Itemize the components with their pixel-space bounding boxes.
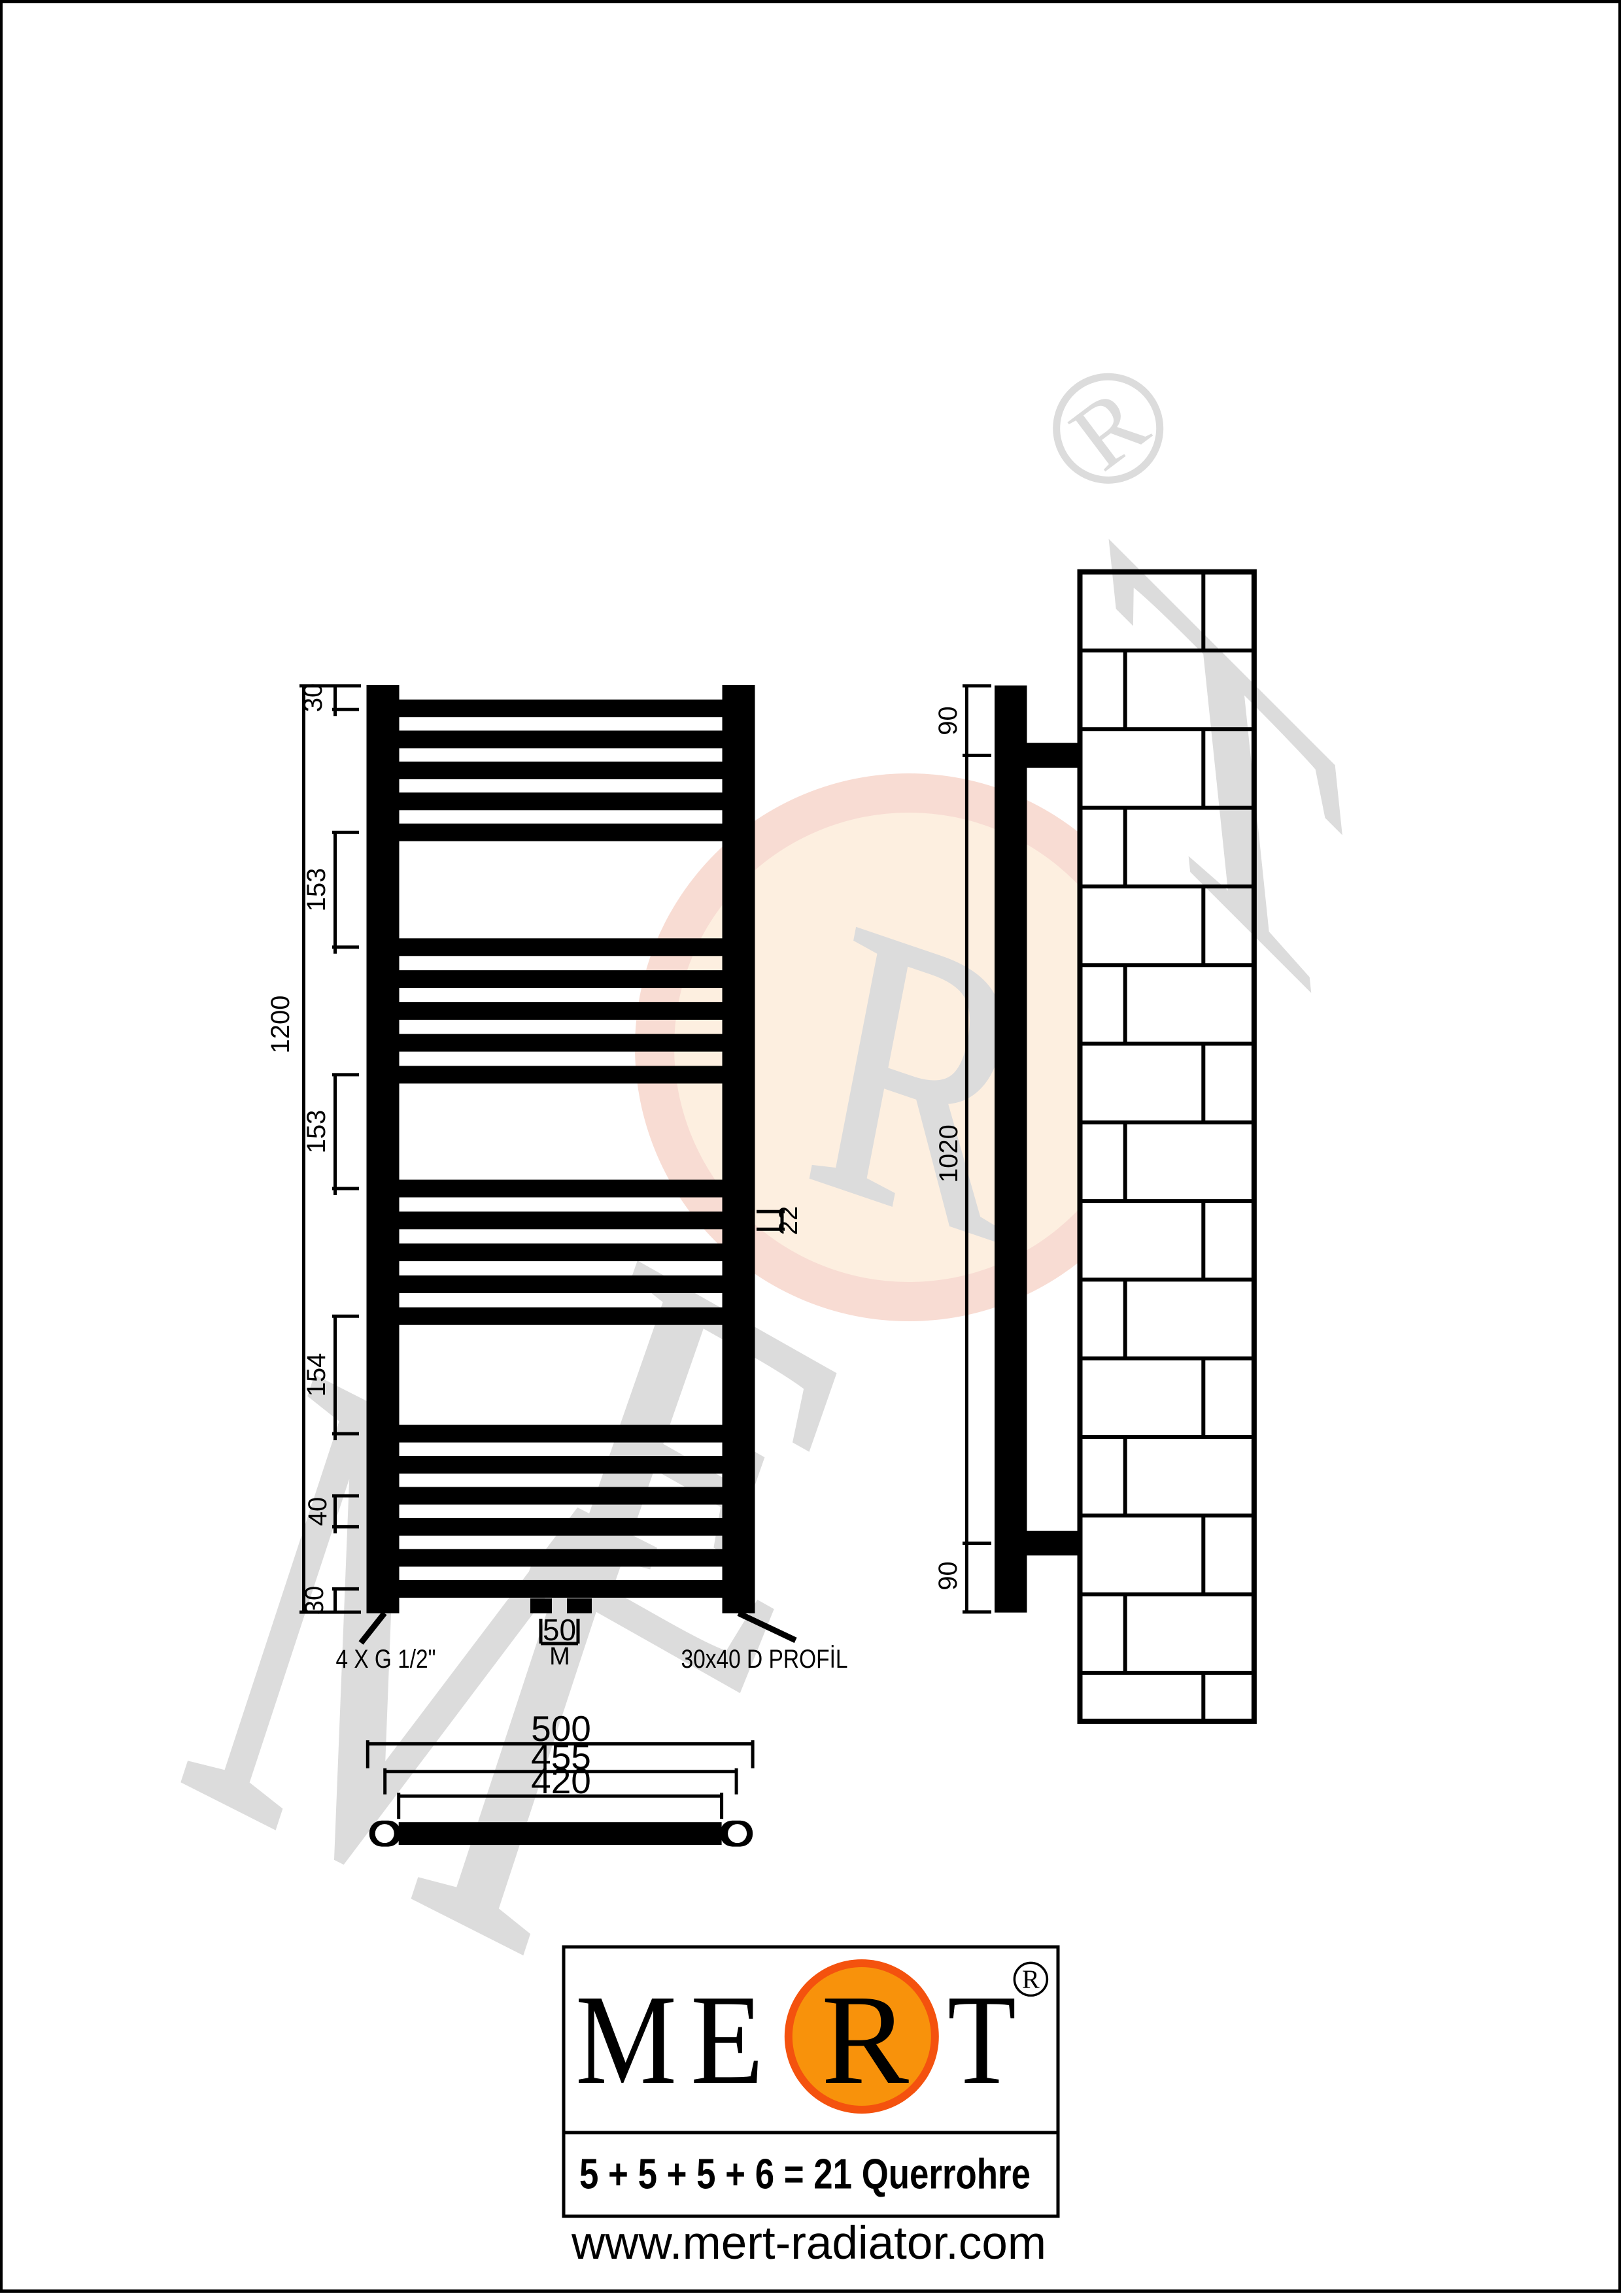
- svg-text:50: 50: [543, 1613, 576, 1647]
- svg-text:90: 90: [934, 706, 963, 735]
- svg-text:420: 420: [531, 1761, 591, 1801]
- svg-text:153: 153: [302, 868, 331, 912]
- svg-text:30x40 D PROFİL: 30x40 D PROFİL: [681, 1644, 848, 1674]
- svg-text:22: 22: [774, 1206, 803, 1236]
- svg-text:30: 30: [300, 1586, 329, 1615]
- svg-text:R: R: [1022, 1965, 1040, 1994]
- svg-text:M: M: [549, 1643, 570, 1670]
- svg-text:40: 40: [303, 1497, 332, 1527]
- svg-text:4 X G 1/2": 4 X G 1/2": [336, 1645, 436, 1674]
- svg-text:1200: 1200: [266, 996, 295, 1054]
- svg-text:30: 30: [299, 683, 328, 713]
- svg-text:R: R: [821, 1968, 910, 2111]
- svg-text:E: E: [691, 1968, 764, 2111]
- svg-text:5 + 5 + 5 + 6 = 21 Querrohre: 5 + 5 + 5 + 6 = 21 Querrohre: [579, 2150, 1031, 2198]
- svg-text:90: 90: [934, 1561, 963, 1591]
- svg-text:M: M: [575, 1968, 677, 2111]
- svg-text:153: 153: [302, 1110, 331, 1154]
- svg-text:154: 154: [302, 1353, 331, 1397]
- svg-text:www.mert-radiator.com: www.mert-radiator.com: [571, 2218, 1046, 2269]
- svg-text:1020: 1020: [934, 1124, 963, 1183]
- svg-text:T: T: [947, 1968, 1016, 2111]
